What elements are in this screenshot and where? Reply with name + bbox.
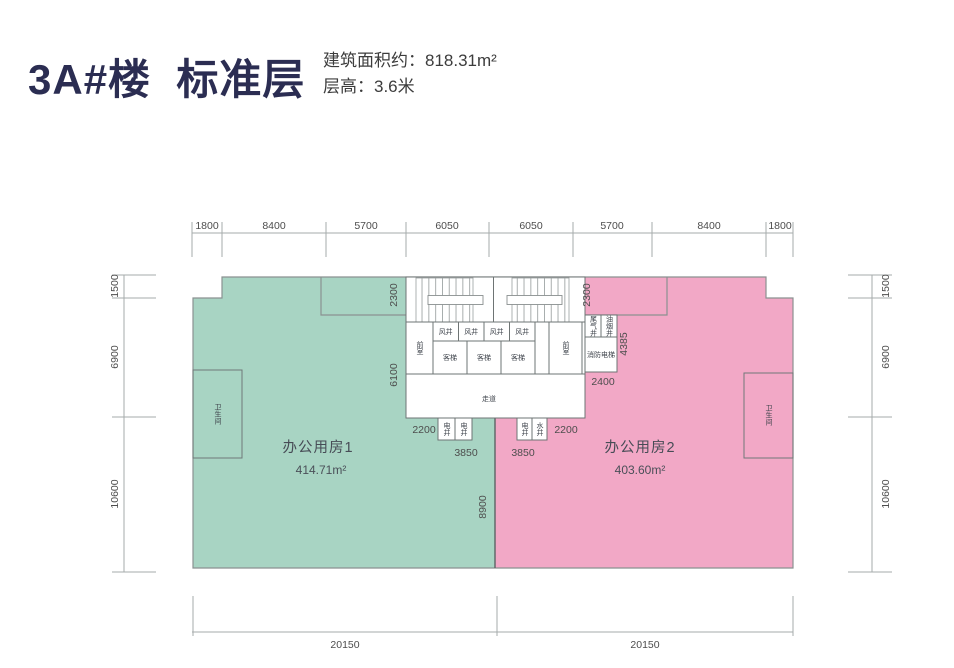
dim-shaft-right-3850: 3850	[511, 447, 535, 459]
front-room-left-label: 前室	[416, 340, 424, 355]
dim-divider-8900: 8900	[477, 495, 489, 519]
elevator-1: 客梯	[477, 353, 491, 362]
dim-top-4: 6050	[519, 220, 543, 232]
dim-fire-4385: 4385	[618, 332, 630, 356]
shaft-left-0: 电井	[443, 421, 451, 437]
dimension-right-ticks	[848, 275, 892, 572]
dim-top-5: 5700	[600, 220, 624, 232]
elevator-row: 客梯 客梯 客梯	[433, 341, 535, 374]
room1-area: 414.71m²	[296, 463, 347, 477]
floor-plan-page: 3A#楼 标准层 建筑面积约：818.31m² 层高：3.6米	[0, 0, 954, 668]
shaft-right-1: 水井	[536, 421, 544, 437]
dim-top-6: 8400	[697, 220, 721, 232]
dimension-left-ticks	[112, 275, 156, 572]
dim-left-0: 1500	[109, 274, 121, 298]
dimension-bottom-ticks	[193, 596, 793, 636]
vent-shaft-row: 风井 风井 风井 风井	[433, 322, 535, 341]
fire-elevator-block: 尾气井 油烟井 消防电梯	[585, 315, 617, 372]
dim-fire-2400: 2400	[591, 376, 615, 388]
dim-bottom-1: 20150	[630, 639, 659, 651]
vent-shaft-1: 风井	[464, 327, 478, 336]
stair-right-landing	[507, 296, 562, 305]
dimension-right: 1500 6900 10600	[848, 274, 892, 572]
dim-shaft-left-3850: 3850	[454, 447, 478, 459]
dim-right-2: 10600	[880, 479, 892, 508]
dim-shaft-right-2200: 2200	[554, 424, 578, 436]
floor-plan-drawing: 1800 8400 5700 6050 6050 5700 8400 1800 …	[0, 0, 954, 668]
vent-shaft-0: 风井	[439, 327, 453, 336]
utility-shafts-left: 电井 电井	[438, 418, 472, 440]
room2-area: 403.60m²	[615, 463, 666, 477]
utility-shafts-right: 电井 水井	[517, 418, 547, 440]
room2-name: 办公用房2	[604, 439, 675, 456]
elevator-0: 客梯	[443, 353, 457, 362]
dim-left-2: 10600	[109, 479, 121, 508]
dim-right-0: 1500	[880, 274, 892, 298]
dim-left-1: 6900	[109, 345, 121, 369]
stair-left-landing	[428, 296, 483, 305]
exhaust-shaft-label: 尾气井	[590, 316, 598, 338]
dim-core-left-2300: 2300	[388, 283, 400, 307]
dimension-top: 1800 8400 5700 6050 6050 5700 8400 1800	[192, 220, 793, 257]
dim-shaft-left-2200: 2200	[412, 424, 436, 436]
elevator-2: 客梯	[511, 353, 525, 362]
front-room-right-label: 前室	[562, 340, 570, 355]
dim-core-left-6100: 6100	[388, 363, 400, 387]
dim-bottom-0: 20150	[330, 639, 359, 651]
dim-core-right-2300: 2300	[581, 283, 593, 307]
dim-top-1: 8400	[262, 220, 286, 232]
vent-shaft-2: 风井	[490, 327, 504, 336]
dim-top-0: 1800	[195, 220, 219, 232]
toilet-right-label: 卫生间	[765, 405, 773, 427]
room1-name: 办公用房1	[282, 439, 353, 456]
dim-top-7: 1800	[768, 220, 792, 232]
dim-right-1: 6900	[880, 345, 892, 369]
dim-top-2: 5700	[354, 220, 378, 232]
shaft-left-1: 电井	[460, 421, 468, 437]
shaft-right-0: 电井	[521, 421, 529, 437]
vent-shaft-3: 风井	[515, 327, 529, 336]
fume-shaft-label: 油烟井	[606, 315, 614, 338]
dimension-left: 1500 6900 10600	[109, 274, 156, 572]
corridor-label: 走道	[482, 394, 496, 403]
fire-elevator-label: 消防电梯	[587, 350, 615, 359]
dim-top-3: 6050	[435, 220, 459, 232]
toilet-left-label: 卫生间	[214, 404, 222, 426]
dimension-bottom: 20150 20150	[192, 596, 793, 651]
